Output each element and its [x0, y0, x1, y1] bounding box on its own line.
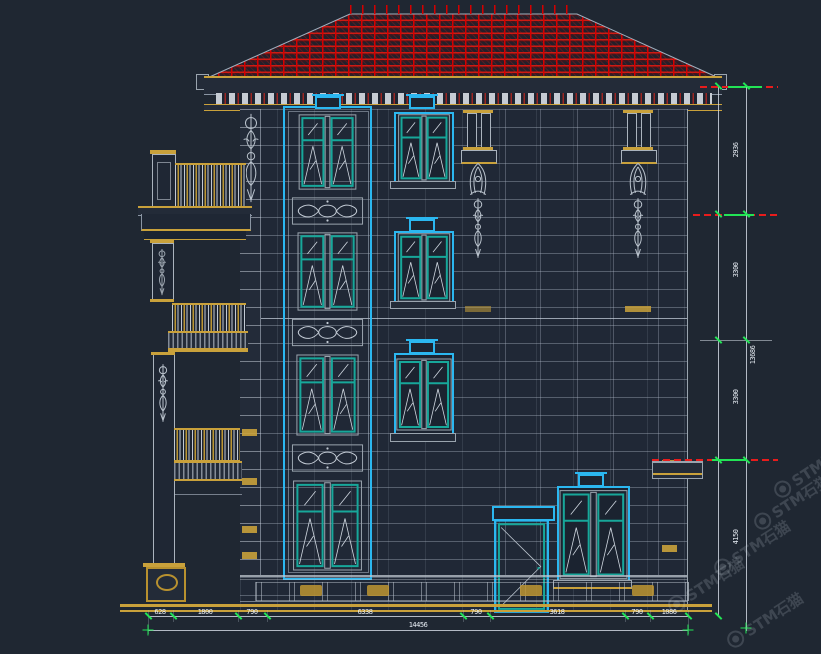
plinth-gold-panel: [300, 585, 322, 596]
pedestal-medallion: [156, 574, 178, 591]
watermark: STM石猫: [723, 588, 807, 653]
wing-cornice-fascia: [141, 214, 251, 231]
mid-window-2: [394, 231, 454, 304]
plinth-gold-panel: [520, 585, 542, 596]
watermark-logo-icon: [724, 627, 748, 651]
dim-bottom-2: 790: [246, 608, 257, 616]
pilaster-colonnette: [481, 113, 491, 149]
wing-gold-line: [168, 350, 248, 352]
dim-right-1: 3300: [732, 263, 740, 278]
plinth-top-line: [240, 575, 687, 577]
wing-tall-pilaster-cap: [151, 352, 175, 355]
pilaster-colonnette: [467, 113, 477, 149]
pilaster-gold-course: [465, 306, 491, 312]
wing-carved-frieze-mid: [168, 331, 248, 350]
dim-line-bottom-outer: [148, 630, 688, 631]
dim-line-right-inner: [718, 86, 719, 617]
newel-carved-panel: [157, 162, 171, 200]
dim-bottom-5: 3618: [550, 608, 565, 616]
porch-ledge: [652, 461, 703, 479]
dentil-course: [216, 93, 712, 104]
roof-outline: [204, 12, 723, 80]
dim-cross: [683, 625, 694, 636]
masonry-joint: [377, 109, 378, 575]
level-line-floor2: [700, 340, 772, 341]
pilaster-drop-ornament: [628, 197, 648, 259]
wing-carved-frieze-low: [174, 461, 242, 481]
mid-window-2-sill: [390, 301, 456, 309]
wing-hanging-ornament: [157, 358, 169, 428]
dim-right-total: 13686: [749, 346, 757, 365]
lower-right-window: [557, 486, 630, 583]
mid-window-1-sill: [390, 181, 456, 189]
dim-right-0: 2936: [732, 143, 740, 158]
dim-bottom-total: 14456: [409, 621, 428, 629]
wing-pilaster-ornament: [156, 248, 168, 296]
bay-window-1: [291, 114, 364, 190]
dim-bottom-4: 790: [470, 608, 481, 616]
plinth-top-line2: [240, 579, 687, 580]
plinth-gold-panel: [632, 585, 654, 596]
watermark-text: STM石猫: [740, 588, 807, 642]
wing-line: [174, 494, 242, 495]
quoin-gold-block: [242, 478, 257, 485]
dim-right-2: 3300: [732, 390, 740, 405]
dim-bottom-1: 1800: [198, 608, 213, 616]
bay-window-3: [291, 354, 364, 436]
dim-line-bottom-inner: [148, 616, 688, 617]
spandrel-panel-2: [291, 315, 364, 350]
bay-top-cap: [315, 96, 341, 109]
dim-bottom-6: 790: [631, 608, 642, 616]
roof-ridge-batten-ticks: [350, 5, 577, 14]
quoin-gold-block: [662, 545, 677, 552]
quoin-gold-block: [242, 526, 257, 533]
mid-window-1: [394, 112, 454, 184]
bay-window-2: [291, 232, 364, 311]
pilaster-corbel-ornament: [625, 161, 651, 197]
pilaster-colonnette: [641, 113, 651, 149]
plinth-gold-panel: [367, 585, 389, 596]
pilaster-corbel-ornament: [465, 161, 491, 197]
porch-ledge-gold-line: [653, 473, 702, 475]
dim-bottom-0: 628: [154, 608, 165, 616]
dim-bottom-3: 6338: [358, 608, 373, 616]
balcony-balustrade-top: [175, 163, 246, 210]
spandrel-panel-1: [291, 194, 364, 228]
dim-cross: [143, 625, 154, 636]
ground-gold-band: [120, 604, 712, 607]
drawing-canvas[interactable]: 628 1800 790 6338 790 3618 790 1086 1445…: [0, 0, 821, 654]
masonry-joint: [658, 109, 659, 575]
mid-window-3-sill: [390, 433, 456, 442]
dim-right-3: 4150: [732, 530, 740, 545]
quoin-gold-block: [242, 552, 257, 559]
wing-pilaster-base: [150, 299, 174, 302]
mid-window-1-cap: [409, 96, 435, 109]
pilaster-gold-course: [625, 306, 651, 312]
pilaster-colonnette: [627, 113, 637, 149]
base-line: [240, 601, 687, 602]
mid-window-3: [394, 353, 454, 436]
bay-window-4: [291, 480, 364, 571]
wing-cornice-soffit: [144, 231, 246, 240]
balcony-balustrade-low: [174, 428, 240, 463]
pilaster-drop-ornament: [468, 197, 488, 259]
spandrel-panel-3: [291, 440, 364, 476]
quoin-gold-block: [242, 429, 257, 436]
